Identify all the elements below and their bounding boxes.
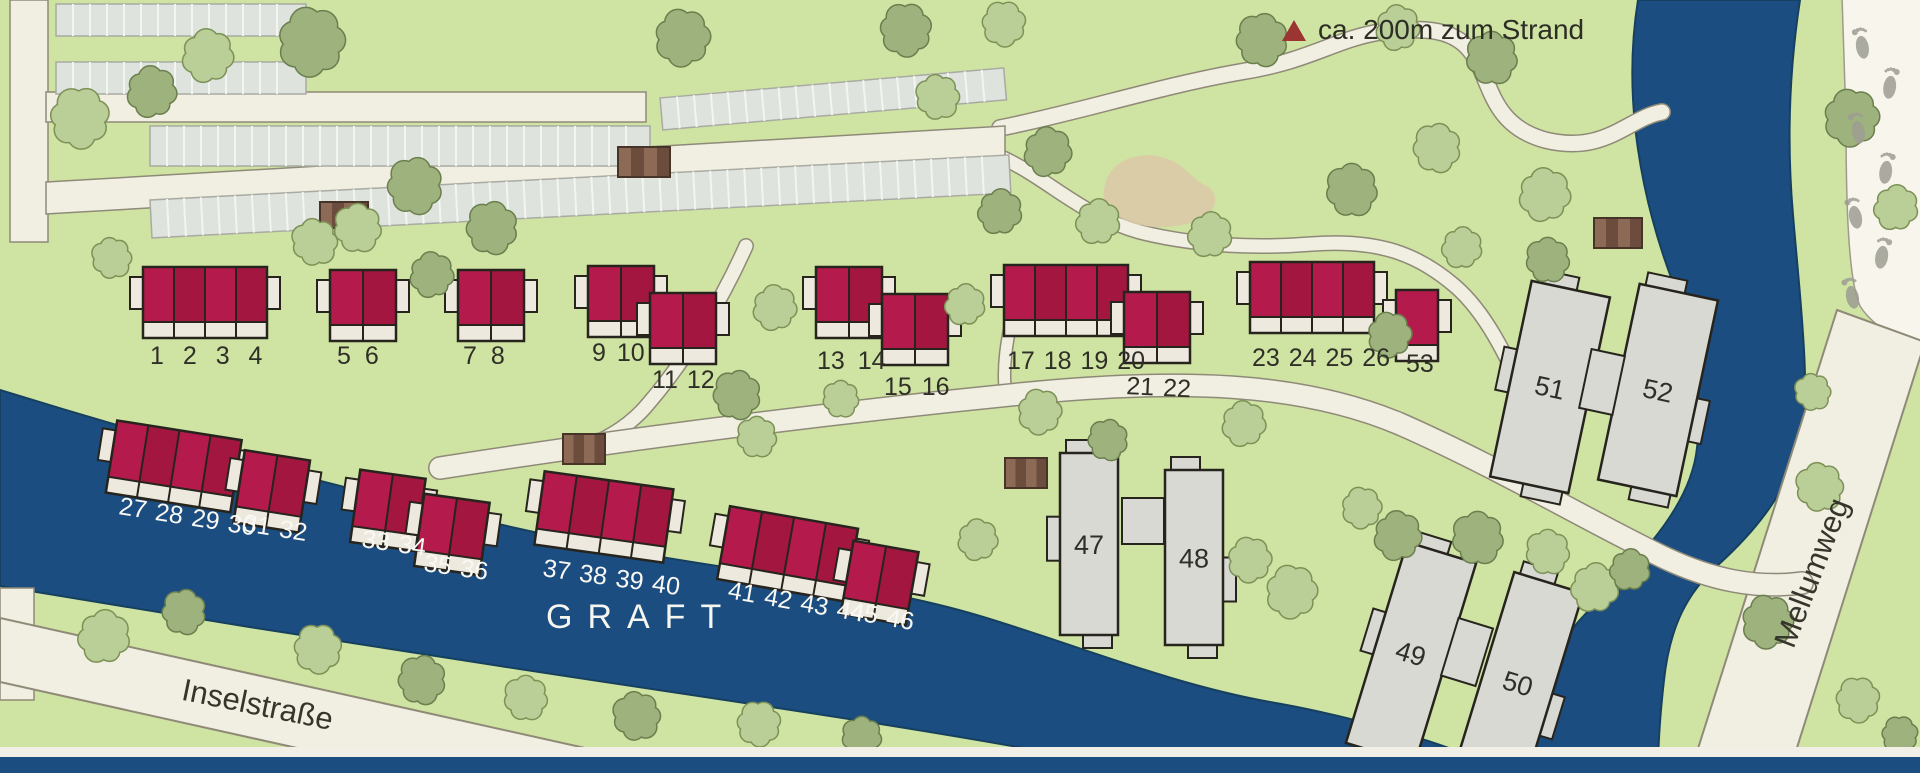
shed bbox=[563, 434, 605, 464]
house-numbers-5-6: 5 6 bbox=[337, 342, 379, 370]
building-tab bbox=[1171, 457, 1200, 470]
house-numbers-7-8: 7 8 bbox=[463, 342, 505, 370]
tree bbox=[505, 676, 546, 719]
tree bbox=[959, 520, 997, 560]
house-entry-tab bbox=[396, 280, 409, 312]
tree bbox=[1328, 164, 1377, 215]
houses-block-23-26 bbox=[1237, 262, 1387, 333]
house-numbers-11-12: 11 12 bbox=[652, 366, 715, 394]
road-parking-vertical bbox=[10, 0, 48, 242]
tree bbox=[738, 417, 776, 456]
tree bbox=[399, 656, 444, 704]
tree bbox=[1527, 238, 1568, 281]
house-entry-tab bbox=[991, 275, 1004, 307]
map-border-strip bbox=[0, 757, 1920, 773]
tree bbox=[1837, 679, 1879, 722]
tree bbox=[1414, 124, 1459, 172]
houses-block-11-12 bbox=[637, 293, 729, 364]
tree bbox=[1089, 420, 1126, 460]
tree bbox=[163, 590, 204, 634]
site-map: 4748495051521 2 3 45 67 89 1011 1213 141… bbox=[0, 0, 1920, 773]
house-entry-tab bbox=[869, 304, 882, 336]
tree bbox=[1744, 596, 1793, 648]
building-number-47: 47 bbox=[1074, 530, 1104, 560]
tree bbox=[714, 371, 759, 419]
house-numbers-17-20: 17 18 19 20 bbox=[1007, 347, 1145, 375]
tree bbox=[1454, 512, 1503, 563]
house-numbers-21-22: 21 22 bbox=[1126, 372, 1192, 403]
house-entry-tab bbox=[130, 277, 143, 309]
tree bbox=[1230, 538, 1272, 582]
tree bbox=[824, 381, 858, 416]
tree bbox=[281, 8, 345, 76]
building-tab bbox=[1047, 517, 1060, 561]
beach-distance-text: ca. 200m zum Strand bbox=[1318, 14, 1584, 46]
house-numbers-15-16: 15 16 bbox=[884, 373, 950, 401]
map-border-line bbox=[0, 747, 1920, 757]
triangle-up-icon bbox=[1282, 20, 1306, 41]
houses-block-1-4 bbox=[130, 267, 280, 338]
houses-block-5-6 bbox=[317, 270, 409, 341]
house-entry-tab bbox=[1190, 302, 1203, 334]
parking-bays-strip bbox=[56, 4, 306, 36]
tree bbox=[1796, 374, 1830, 409]
tree bbox=[738, 703, 780, 746]
tree bbox=[1344, 488, 1382, 528]
shed bbox=[1005, 458, 1047, 488]
tree bbox=[983, 3, 1025, 46]
house-entry-tab bbox=[317, 280, 330, 312]
tree bbox=[1527, 530, 1568, 573]
house-entry-tab bbox=[716, 303, 729, 335]
tree bbox=[295, 626, 340, 673]
tree bbox=[335, 204, 380, 251]
tree bbox=[1020, 390, 1062, 434]
building-number-48: 48 bbox=[1179, 544, 1209, 574]
shed bbox=[1594, 218, 1642, 248]
house-numbers-1-4: 1 2 3 4 bbox=[150, 342, 263, 370]
house-numbers-9-10: 9 10 bbox=[592, 339, 645, 367]
building-number-51: 51 bbox=[1532, 370, 1568, 406]
tree bbox=[1268, 566, 1317, 618]
house-numbers-13-14: 13 14 bbox=[817, 347, 886, 375]
building-tab bbox=[1083, 635, 1112, 648]
building-number-52: 52 bbox=[1640, 373, 1676, 409]
tree bbox=[388, 158, 440, 213]
house-numbers-23-26: 23 24 25 26 bbox=[1252, 344, 1390, 372]
house-entry-tab bbox=[803, 277, 816, 309]
house-entry-tab bbox=[575, 276, 588, 308]
house-entry-tab bbox=[267, 277, 280, 309]
map-canvas: 4748495051521 2 3 45 67 89 1011 1213 141… bbox=[0, 0, 1920, 773]
parking-bays-strip bbox=[150, 126, 650, 166]
building-tab bbox=[1188, 645, 1217, 658]
house-entry-tab bbox=[637, 303, 650, 335]
house-entry-tab bbox=[1111, 302, 1124, 334]
houses-block-7-8 bbox=[445, 270, 537, 341]
tree bbox=[1237, 14, 1285, 65]
parking-bays-strip bbox=[56, 62, 306, 94]
building-connector bbox=[1122, 498, 1164, 544]
house-numbers-53: 53 bbox=[1406, 350, 1434, 378]
house-entry-tab bbox=[1237, 272, 1250, 304]
tree bbox=[467, 202, 515, 253]
house-entry-tab bbox=[524, 280, 537, 312]
house-entry-tab bbox=[1438, 300, 1451, 332]
shed bbox=[618, 147, 670, 177]
tree bbox=[657, 10, 710, 66]
beach-distance-legend: ca. 200m zum Strand bbox=[1282, 14, 1584, 46]
